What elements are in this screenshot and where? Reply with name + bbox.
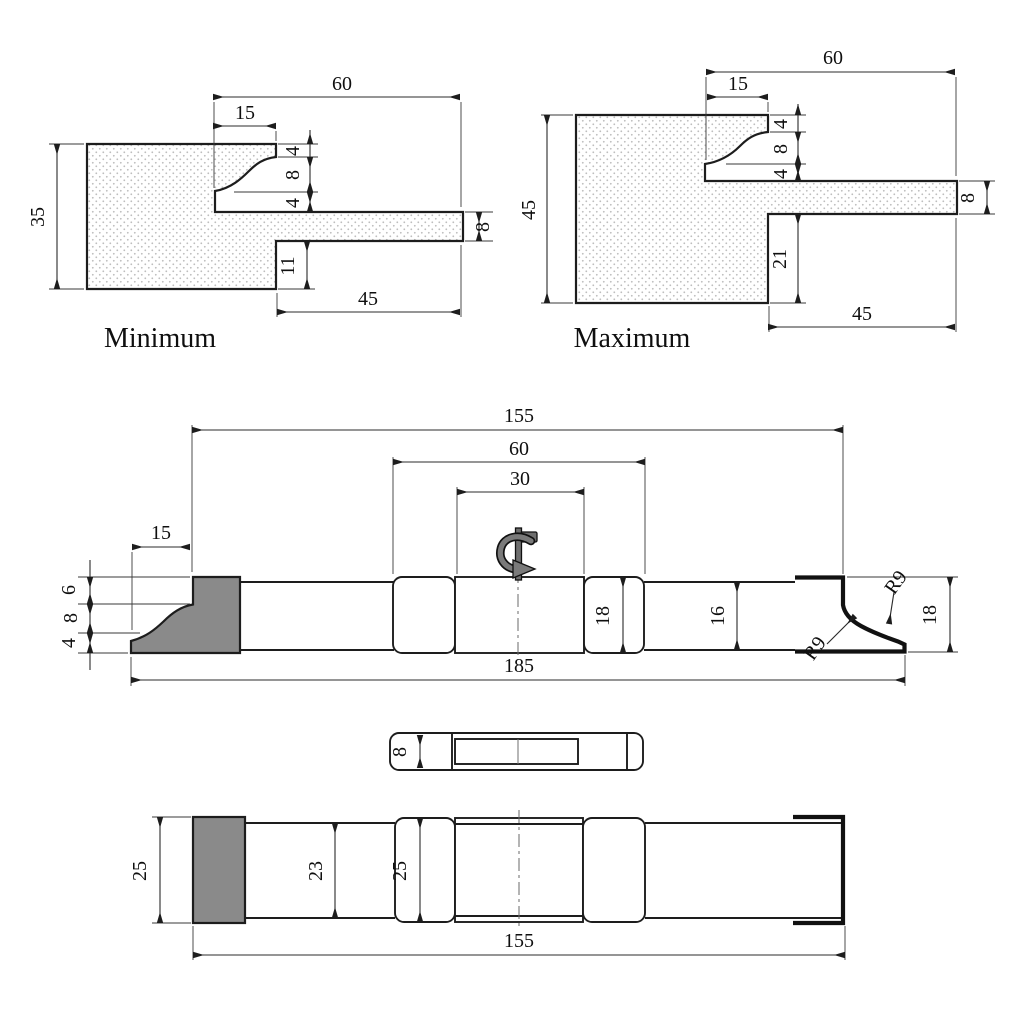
dim-bottom-body-length: 155 <box>193 930 845 955</box>
dim-label: 155 <box>504 405 534 427</box>
dim-minimum-arm-length: 45 <box>277 288 460 312</box>
right-collar-plan <box>583 818 645 922</box>
dim-side-knife-steps: 6 8 4 <box>58 560 90 670</box>
dim-label: 8 <box>957 193 979 203</box>
dim-side-knife-width: 15 <box>132 522 190 547</box>
cutter-side-view: 155 60 30 15 6 8 4 1 <box>58 405 958 686</box>
dim-minimum-profile-width: 15 <box>213 102 276 126</box>
cutter-bottom-view: 25 23 25 155 <box>129 810 845 960</box>
dim-label: 6 <box>58 585 80 595</box>
dim-label: 4 <box>770 119 792 129</box>
dim-maximum-arm-thickness: 8 <box>957 181 987 214</box>
maximum-caption: Maximum <box>574 323 691 354</box>
dim-label: 11 <box>277 256 299 275</box>
radius-callout-lower: R9 <box>799 616 855 664</box>
dim-maximum-profile-width: 15 <box>707 73 768 97</box>
dim-minimum-arm-thickness: 8 <box>472 212 494 241</box>
dim-label: 18 <box>919 605 941 625</box>
dim-maximum-ogee: 8 <box>770 132 798 164</box>
dim-label: 60 <box>332 73 352 95</box>
technical-drawing: 60 15 35 4 8 4 8 <box>0 0 1024 1024</box>
dim-label: 45 <box>518 200 540 220</box>
knife-top-view: 8 <box>389 733 643 770</box>
dim-maximum-step-top: 4 <box>770 104 798 132</box>
dim-side-head-span: 60 <box>393 438 645 462</box>
dim-label: 16 <box>707 606 729 626</box>
dim-maximum-overall-width: 60 <box>706 47 955 72</box>
dim-label: 15 <box>728 73 748 95</box>
dim-label: R9 <box>799 633 830 665</box>
dim-label: 8 <box>389 747 411 757</box>
dim-bottom-cutter-width: 25 <box>129 817 160 923</box>
dim-label: 4 <box>282 198 304 208</box>
dim-label: 4 <box>770 169 792 179</box>
dim-label: R9 <box>880 567 911 599</box>
cutter-head-plan <box>193 817 245 923</box>
dim-label: 185 <box>504 655 534 677</box>
dim-label: 21 <box>769 249 791 269</box>
dim-label: 18 <box>592 606 614 626</box>
cutter-head-profile <box>131 577 240 653</box>
dim-label: 4 <box>282 146 304 156</box>
dim-label: 25 <box>129 861 151 881</box>
dim-maximum-lip: 21 <box>769 214 798 303</box>
maximum-profile-outline <box>576 115 957 303</box>
left-collar <box>393 577 455 653</box>
dim-side-shaft-height: 16 <box>707 582 737 650</box>
dim-label: 15 <box>235 102 255 124</box>
dim-side-knife-height: 18 <box>919 577 950 652</box>
dim-maximum-step-bottom: 4 <box>770 164 798 181</box>
dim-label: 8 <box>770 144 792 154</box>
minimum-profile-outline <box>87 144 463 289</box>
dim-minimum-overall-width: 60 <box>213 73 460 97</box>
dim-label: 25 <box>389 861 411 881</box>
technical-drawing-page: 60 15 35 4 8 4 8 <box>0 0 1024 1024</box>
dim-maximum-height: 45 <box>518 115 547 303</box>
dim-label: 30 <box>510 468 530 490</box>
dim-label: 45 <box>358 288 378 310</box>
dim-label: 15 <box>151 522 171 544</box>
dim-minimum-height: 35 <box>27 144 57 289</box>
dim-label: 155 <box>504 930 534 952</box>
knife-slot-section <box>455 577 584 653</box>
dim-bottom-shaft-width: 23 <box>305 823 335 918</box>
dim-side-body-length: 155 <box>192 405 843 430</box>
dim-label: 8 <box>282 170 304 180</box>
dim-minimum-lip: 11 <box>277 241 307 289</box>
dim-minimum-step-bottom: 4 <box>282 192 310 212</box>
dim-label: 35 <box>27 207 49 227</box>
dim-label: 4 <box>58 638 80 648</box>
rotation-direction-icon <box>500 528 537 580</box>
dim-label: 23 <box>305 861 327 881</box>
maximum-profile-view: 60 15 45 4 8 4 8 21 <box>518 47 995 354</box>
dim-minimum-ogee: 8 <box>282 157 310 192</box>
dim-maximum-arm-length: 45 <box>768 303 955 327</box>
minimum-caption: Minimum <box>104 323 216 354</box>
dim-side-overall-length: 185 <box>131 655 905 680</box>
dim-side-slot-length: 30 <box>457 468 584 492</box>
dim-minimum-step-top: 4 <box>282 130 310 157</box>
dim-label: 60 <box>823 47 843 69</box>
radius-callout-upper: R9 <box>880 567 911 624</box>
dim-label: 8 <box>472 222 494 232</box>
knife-holder-bracket <box>793 817 843 923</box>
dim-label: 45 <box>852 303 872 325</box>
dim-label: 8 <box>60 613 82 623</box>
minimum-profile-view: 60 15 35 4 8 4 8 <box>27 73 494 354</box>
dim-label: 60 <box>509 438 529 460</box>
